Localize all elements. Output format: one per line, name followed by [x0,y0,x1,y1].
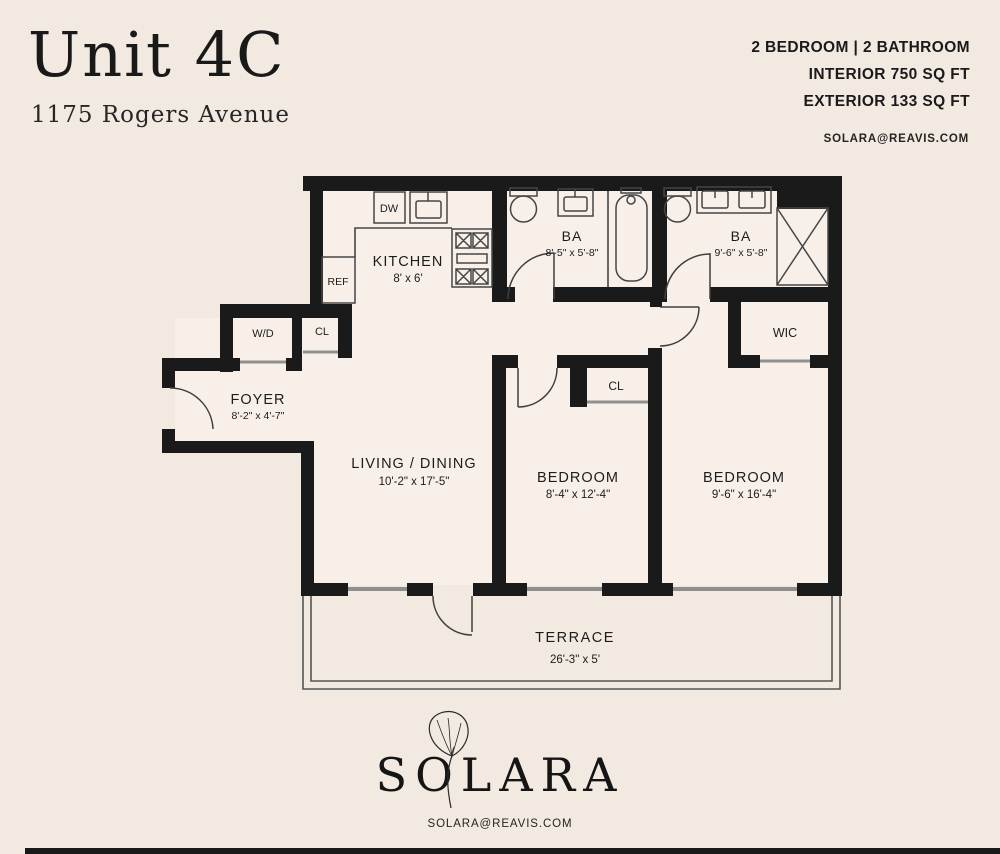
footer-contact-email: SOLARA@REAVIS.COM [0,818,1000,830]
terrace-door [433,596,472,635]
living-dims: 10'-2" x 17'-5" [379,476,450,488]
foyer-label: FOYER [231,392,286,408]
brand-logo: SOLARA [0,748,1000,802]
floor-plan: KITCHEN 8' x 6' BA 8'-5" x 5'-8" BA 9'-6… [0,0,1000,854]
bottom-bar [25,848,1000,854]
bedroom-closet-label: CL [608,379,624,393]
entry-closet-label: CL [315,326,329,338]
refrigerator-label: REF [328,276,349,288]
bedroom1-dims: 8'-4" x 12'-4" [546,489,610,501]
walk-in-closet-label: WIC [773,326,797,340]
bedroom2-dims: 9'-6" x 16'-4" [712,489,776,501]
terrace-dims: 26'-3" x 5' [550,654,600,666]
calla-lily-icon [424,710,480,810]
bath1-label: BA [562,228,583,244]
foyer-dims: 8'-2" x 4'-7" [232,410,285,422]
brand-logo-text: SOLARA [376,748,625,802]
bath2-label: BA [731,228,752,244]
bath1-dims: 8'-5" x 5'-8" [546,247,599,259]
living-label: LIVING / DINING [351,456,476,472]
dishwasher-label: DW [380,203,399,215]
kitchen-label: KITCHEN [373,254,444,270]
bedroom2-label: BEDROOM [703,470,785,486]
bath2-dims: 9'-6" x 5'-8" [715,247,768,259]
washer-dryer-label: W/D [252,328,273,340]
terrace-label: TERRACE [535,630,615,646]
kitchen-dims: 8' x 6' [393,273,422,285]
bedroom1-label: BEDROOM [537,470,619,486]
